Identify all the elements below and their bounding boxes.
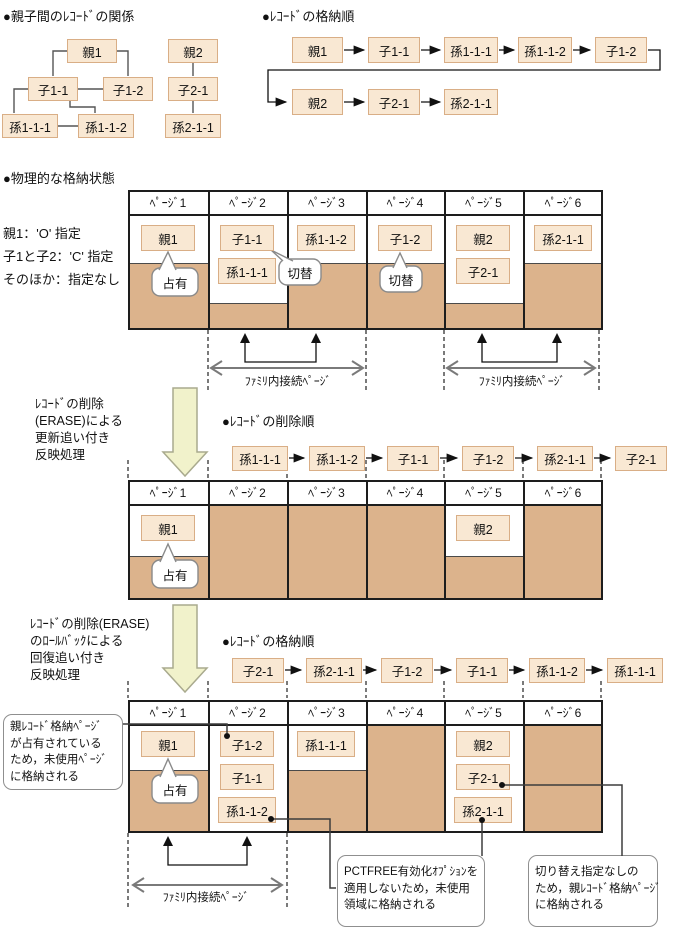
seq-restore-box: 孫1-1-2 [529, 658, 585, 683]
seq-restore-box: 孫1-1-1 [607, 658, 663, 683]
page-header: ﾍﾟｰｼﾞ5 [444, 192, 523, 212]
title-parent-child-relation: ●親子間のﾚｺｰﾄﾞの関係 [3, 6, 134, 25]
callout-line: に格納される [10, 769, 116, 786]
spec-line: そのほか：指定なし [3, 268, 120, 291]
tree-node-mago112: 孫1-1-2 [78, 114, 134, 138]
page-header: ﾍﾟｰｼﾞ6 [523, 702, 603, 722]
tree-node-ko11: 子1-1 [28, 77, 78, 101]
balloon-switch: 切替 [380, 266, 422, 292]
balloon-occupied: 占有 [152, 560, 198, 588]
occupied-area [368, 506, 444, 598]
seq-delete-box: 子1-1 [387, 446, 439, 471]
tree-node-mago111: 孫1-1-1 [2, 114, 58, 138]
callout-line: に格納される [535, 897, 651, 914]
seq-restore-box: 孫2-1-1 [306, 658, 362, 683]
seq-restore-box: 子2-1 [232, 658, 284, 683]
stored-record: 親1 [141, 731, 195, 757]
page-header: ﾍﾟｰｼﾞ2 [208, 482, 287, 502]
seq-delete-box: 孫1-1-2 [309, 446, 365, 471]
stored-record: 親2 [456, 515, 510, 541]
seq-restore-box: 子1-1 [456, 658, 508, 683]
title-storage-order-top: ●ﾚｺｰﾄﾞの格納順 [262, 6, 354, 25]
occupied-area [289, 770, 366, 831]
process2-text: ﾚｺｰﾄﾞの削除(ERASE) のﾛｰﾙﾊﾞｯｸによる 回復追い付き 反映処理 [30, 616, 149, 684]
seq-delete-box: 孫1-1-1 [232, 446, 288, 471]
process1-line: 反映処理 [35, 447, 123, 464]
callout-line: ため，親ﾚｺｰﾄﾞ格納ﾍﾟｰｼﾞ [535, 881, 651, 898]
stored-record: 孫1-1-2 [297, 225, 355, 251]
seq-top-box: 子1-2 [595, 37, 647, 63]
seq-top-box: 親2 [292, 89, 343, 115]
process2-line: 回復追い付き [30, 650, 149, 667]
occupied-area [289, 506, 366, 598]
stored-record: 親1 [141, 225, 195, 251]
occupied-area [525, 726, 601, 831]
stored-record: 孫1-1-2 [218, 797, 276, 823]
balloon-occupied: 占有 [152, 268, 198, 296]
stored-record: 孫1-1-1 [218, 258, 276, 284]
tree-node-mago211: 孫2-1-1 [165, 114, 221, 138]
family-connected-pages-label: ﾌｧﾐﾘ内接続ﾍﾟｰｼﾞ [130, 889, 282, 905]
callout-line: ため，未使用ﾍﾟｰｼﾞ [10, 752, 116, 769]
seq-delete-box: 子2-1 [615, 446, 667, 471]
title-physical-state: ●物理的な格納状態 [3, 168, 115, 187]
stored-record: 子1-2 [220, 731, 274, 757]
seq-top-box: 孫1-1-1 [444, 37, 498, 63]
process1-line: 更新追い付き [35, 430, 123, 447]
process2-line: 反映処理 [30, 667, 149, 684]
callout-no-switch: 切り替え指定なしの ため，親ﾚｺｰﾄﾞ格納ﾍﾟｰｼﾞ に格納される [528, 855, 658, 927]
page-header: ﾍﾟｰｼﾞ1 [128, 702, 208, 722]
seq-delete-box: 孫2-1-1 [537, 446, 593, 471]
stored-record: 親1 [141, 515, 195, 541]
callout-line: 領域に格納される [344, 897, 478, 914]
seq-restore-box: 子1-2 [381, 658, 433, 683]
process1-line: (ERASE)による [35, 413, 123, 430]
process2-line: のﾛｰﾙﾊﾞｯｸによる [30, 633, 149, 650]
tree-node-ko21: 子2-1 [168, 77, 218, 101]
occupied-area [525, 506, 601, 598]
page-header: ﾍﾟｰｼﾞ4 [366, 482, 444, 502]
occupied-area [525, 263, 601, 328]
tree-node-oya2: 親2 [168, 39, 218, 63]
spec-line: 子1と子2：'C' 指定 [3, 245, 120, 268]
balloon-occupied: 占有 [152, 775, 198, 803]
stored-record: 親2 [456, 731, 510, 757]
process2-line: ﾚｺｰﾄﾞの削除(ERASE) [30, 616, 149, 633]
page-header: ﾍﾟｰｼﾞ2 [208, 702, 287, 722]
callout-line: 適用しないため，未使用 [344, 881, 478, 898]
spec-text: 親1：'O' 指定 子1と子2：'C' 指定 そのほか：指定なし [3, 222, 120, 291]
page-header: ﾍﾟｰｼﾞ1 [128, 192, 208, 212]
page-header: ﾍﾟｰｼﾞ5 [444, 702, 523, 722]
callout-line: PCTFREE有効化ｵﾌﾟｼｮﾝを [344, 864, 478, 881]
stored-record: 子1-1 [220, 764, 274, 790]
stored-record: 子1-1 [220, 225, 274, 251]
seq-top-box: 孫1-1-2 [518, 37, 572, 63]
family-connected-pages-label: ﾌｧﾐﾘ内接続ﾍﾟｰｼﾞ [212, 373, 364, 389]
tree-node-oya1: 親1 [67, 39, 117, 63]
family-connected-pages-label: ﾌｧﾐﾘ内接続ﾍﾟｰｼﾞ [446, 373, 598, 389]
stored-record: 孫1-1-1 [297, 731, 355, 757]
callout-pctfree: PCTFREE有効化ｵﾌﾟｼｮﾝを 適用しないため，未使用 領域に格納される [337, 855, 485, 927]
callout-occupied-page: 親ﾚｺｰﾄﾞ格納ﾍﾟｰｼﾞ が占有されている ため，未使用ﾍﾟｰｼﾞ に格納され… [3, 714, 123, 790]
callout-line: 切り替え指定なしの [535, 864, 651, 881]
stored-record: 子1-2 [378, 225, 432, 251]
page-header: ﾍﾟｰｼﾞ3 [287, 482, 366, 502]
page-header: ﾍﾟｰｼﾞ3 [287, 192, 366, 212]
stored-record: 孫2-1-1 [454, 797, 512, 823]
stored-record: 親2 [456, 225, 510, 251]
occupied-area [446, 556, 523, 598]
page-header: ﾍﾟｰｼﾞ4 [366, 192, 444, 212]
page-header: ﾍﾟｰｼﾞ2 [208, 192, 287, 212]
spec-line: 親1：'O' 指定 [3, 222, 120, 245]
seq-top-box: 子2-1 [368, 89, 420, 115]
occupied-area [368, 726, 444, 831]
page-header: ﾍﾟｰｼﾞ4 [366, 702, 444, 722]
callout-line: が占有されている [10, 736, 116, 753]
seq-delete-box: 子1-2 [462, 446, 514, 471]
occupied-area [210, 506, 287, 598]
seq-top-box: 子1-1 [368, 37, 420, 63]
page-header: ﾍﾟｰｼﾞ6 [523, 482, 603, 502]
page-header: ﾍﾟｰｼﾞ1 [128, 482, 208, 502]
stored-record: 子2-1 [456, 258, 510, 284]
tree-node-ko12: 子1-2 [103, 77, 153, 101]
page-header: ﾍﾟｰｼﾞ3 [287, 702, 366, 722]
stored-record: 子2-1 [456, 764, 510, 790]
seq-top-box: 孫2-1-1 [444, 89, 498, 115]
page-header: ﾍﾟｰｼﾞ6 [523, 192, 603, 212]
occupied-area [446, 303, 523, 328]
process1-text: ﾚｺｰﾄﾞの削除 (ERASE)による 更新追い付き 反映処理 [35, 396, 123, 464]
balloon-switch: 切替 [279, 259, 321, 285]
title-storage-order-bottom: ●ﾚｺｰﾄﾞの格納順 [222, 631, 314, 650]
title-delete-order: ●ﾚｺｰﾄﾞの削除順 [222, 411, 314, 430]
occupied-area [210, 303, 287, 328]
process1-line: ﾚｺｰﾄﾞの削除 [35, 396, 123, 413]
page-header: ﾍﾟｰｼﾞ5 [444, 482, 523, 502]
stored-record: 孫2-1-1 [534, 225, 592, 251]
storage-diagram: ●親子間のﾚｺｰﾄﾞの関係 ●ﾚｺｰﾄﾞの格納順 ●物理的な格納状態 ●ﾚｺｰﾄ… [0, 0, 687, 936]
callout-line: 親ﾚｺｰﾄﾞ格納ﾍﾟｰｼﾞ [10, 719, 116, 736]
seq-top-box: 親1 [292, 37, 343, 63]
